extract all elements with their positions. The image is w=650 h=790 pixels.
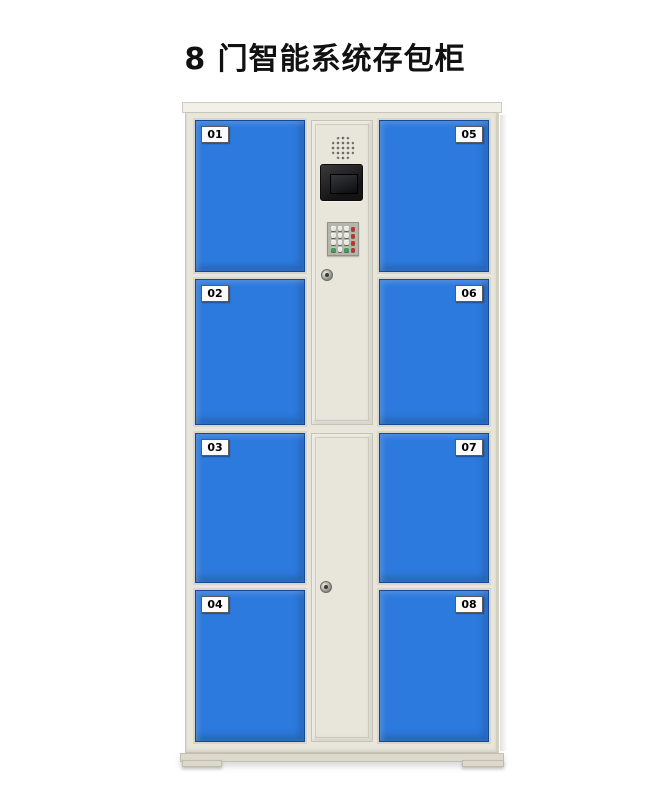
keypad-key-white (338, 247, 343, 252)
locker-door-08: 08 (379, 590, 489, 742)
keypad-key-white (338, 240, 343, 245)
locker-side-shadow (500, 115, 507, 751)
lcd-display-inner (330, 174, 358, 194)
door-number-tag: 04 (201, 596, 229, 613)
lower-keyhole-lock-icon (320, 581, 332, 593)
keypad (327, 222, 359, 256)
keypad-key-white (338, 226, 343, 231)
door-number-tag: 08 (455, 596, 483, 613)
upper-keyhole-lock-icon (321, 269, 333, 281)
locker-door-02: 02 (195, 279, 305, 425)
door-number-tag: 01 (201, 126, 229, 143)
locker-door-07: 07 (379, 433, 489, 583)
page-title: 8 门智能系统存包柜 (0, 34, 650, 78)
keypad-key-red (351, 226, 356, 231)
locker-product-image: 8 门智能系统存包柜 01 02 03 04 05 06 07 08 (0, 0, 650, 790)
keypad-key-white (331, 226, 336, 231)
keypad-key-red (351, 247, 356, 252)
door-number-tag: 07 (455, 439, 483, 456)
keypad-key-green (331, 247, 336, 252)
door-number-tag: 02 (201, 285, 229, 302)
locker-door-03: 03 (195, 433, 305, 583)
speaker-grill-icon (331, 136, 355, 160)
locker-foot-right (462, 760, 504, 767)
door-number-tag: 06 (455, 285, 483, 302)
keypad-key-red (351, 233, 356, 238)
keypad-key-white (344, 233, 349, 238)
keypad-key-white (331, 233, 336, 238)
locker-foot-left (182, 760, 222, 767)
keypad-key-green (344, 247, 349, 252)
keypad-key-white (338, 233, 343, 238)
locker-base (180, 753, 504, 762)
door-number-tag: 03 (201, 439, 229, 456)
door-number-tag: 05 (455, 126, 483, 143)
locker-door-06: 06 (379, 279, 489, 425)
locker-door-01: 01 (195, 120, 305, 272)
keypad-key-white (331, 240, 336, 245)
locker-door-05: 05 (379, 120, 489, 272)
keypad-key-red (351, 240, 356, 245)
lcd-display-screen (320, 164, 363, 201)
keypad-key-white (344, 240, 349, 245)
keypad-key-white (344, 226, 349, 231)
locker-door-04: 04 (195, 590, 305, 742)
